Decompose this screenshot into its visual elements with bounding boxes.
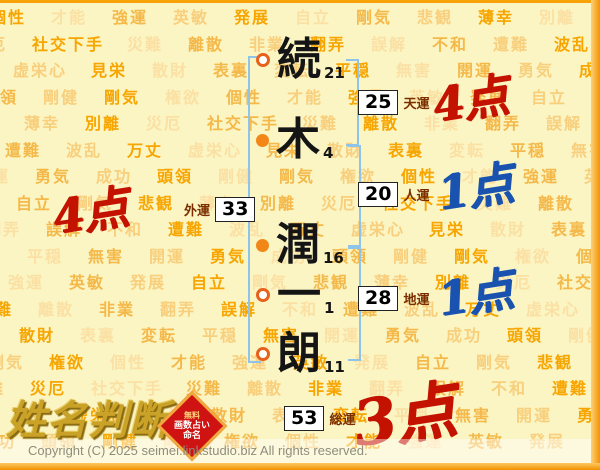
- bottom-border: [0, 463, 600, 470]
- gaiun-luck: 外運 33: [179, 197, 255, 222]
- tenun-value: 25: [358, 90, 398, 115]
- name-character: 朗: [277, 331, 321, 377]
- name-char-row: 潤 16: [256, 222, 344, 268]
- badge-line-3: 命名: [174, 431, 210, 441]
- site-logo[interactable]: 姓名判断: [6, 388, 170, 446]
- chiun-luck: 28 地運: [358, 286, 434, 311]
- jinun-luck: 20 人運: [358, 182, 434, 207]
- seimei-result-page: 個性才能強運英敏発展自立剛気悲観薄幸別離災厄社交下手災難離散非業翻弄誤解不和遭難…: [0, 0, 600, 470]
- name-character: 続: [277, 37, 321, 83]
- souun-luck: 53 総運: [284, 406, 360, 431]
- top-border: [0, 0, 600, 3]
- chiun-value: 28: [358, 286, 398, 311]
- gaiun-score: 4点: [47, 171, 130, 248]
- copyright-text: Copyright (C) 2025 seimei.linkstudio.biz…: [28, 443, 368, 458]
- name-char-row: 一 1: [256, 272, 334, 318]
- name-character: 潤: [276, 222, 320, 268]
- tenun-score: 4点: [427, 59, 510, 136]
- char-marker-icon: [256, 134, 269, 147]
- chiun-label: 地運: [403, 289, 429, 308]
- name-char-row: 朗 11: [256, 331, 345, 377]
- gaiun-label: 外運: [184, 200, 210, 219]
- name-char-row: 木 4: [256, 117, 333, 163]
- stroke-count: 16: [323, 249, 344, 267]
- char-marker-icon: [256, 347, 270, 361]
- jinun-label: 人運: [403, 185, 429, 204]
- char-marker-icon: [256, 53, 270, 67]
- stroke-count: 4: [323, 144, 333, 162]
- char-marker-icon: [256, 288, 270, 302]
- jinun-value: 20: [358, 182, 398, 207]
- stroke-count: 11: [324, 358, 345, 376]
- stroke-count: 1: [324, 299, 334, 317]
- name-char-row: 続 21: [256, 37, 345, 83]
- char-marker-icon: [256, 239, 269, 252]
- stroke-count: 21: [324, 64, 345, 82]
- jinun-score: 1点: [432, 147, 515, 224]
- souun-value: 53: [284, 406, 324, 431]
- tenun-luck: 25 天運: [358, 90, 434, 115]
- right-border: [591, 0, 600, 470]
- badge-text: 無料 画数占い 命名: [174, 411, 210, 441]
- gaiun-value: 33: [215, 197, 255, 222]
- badge-line-1: 無料: [174, 411, 210, 421]
- chiun-score: 1点: [432, 253, 515, 330]
- name-character: 木: [276, 117, 320, 163]
- tenun-label: 天運: [403, 93, 429, 112]
- name-character: 一: [277, 272, 321, 318]
- badge-line-2: 画数占い: [174, 421, 210, 431]
